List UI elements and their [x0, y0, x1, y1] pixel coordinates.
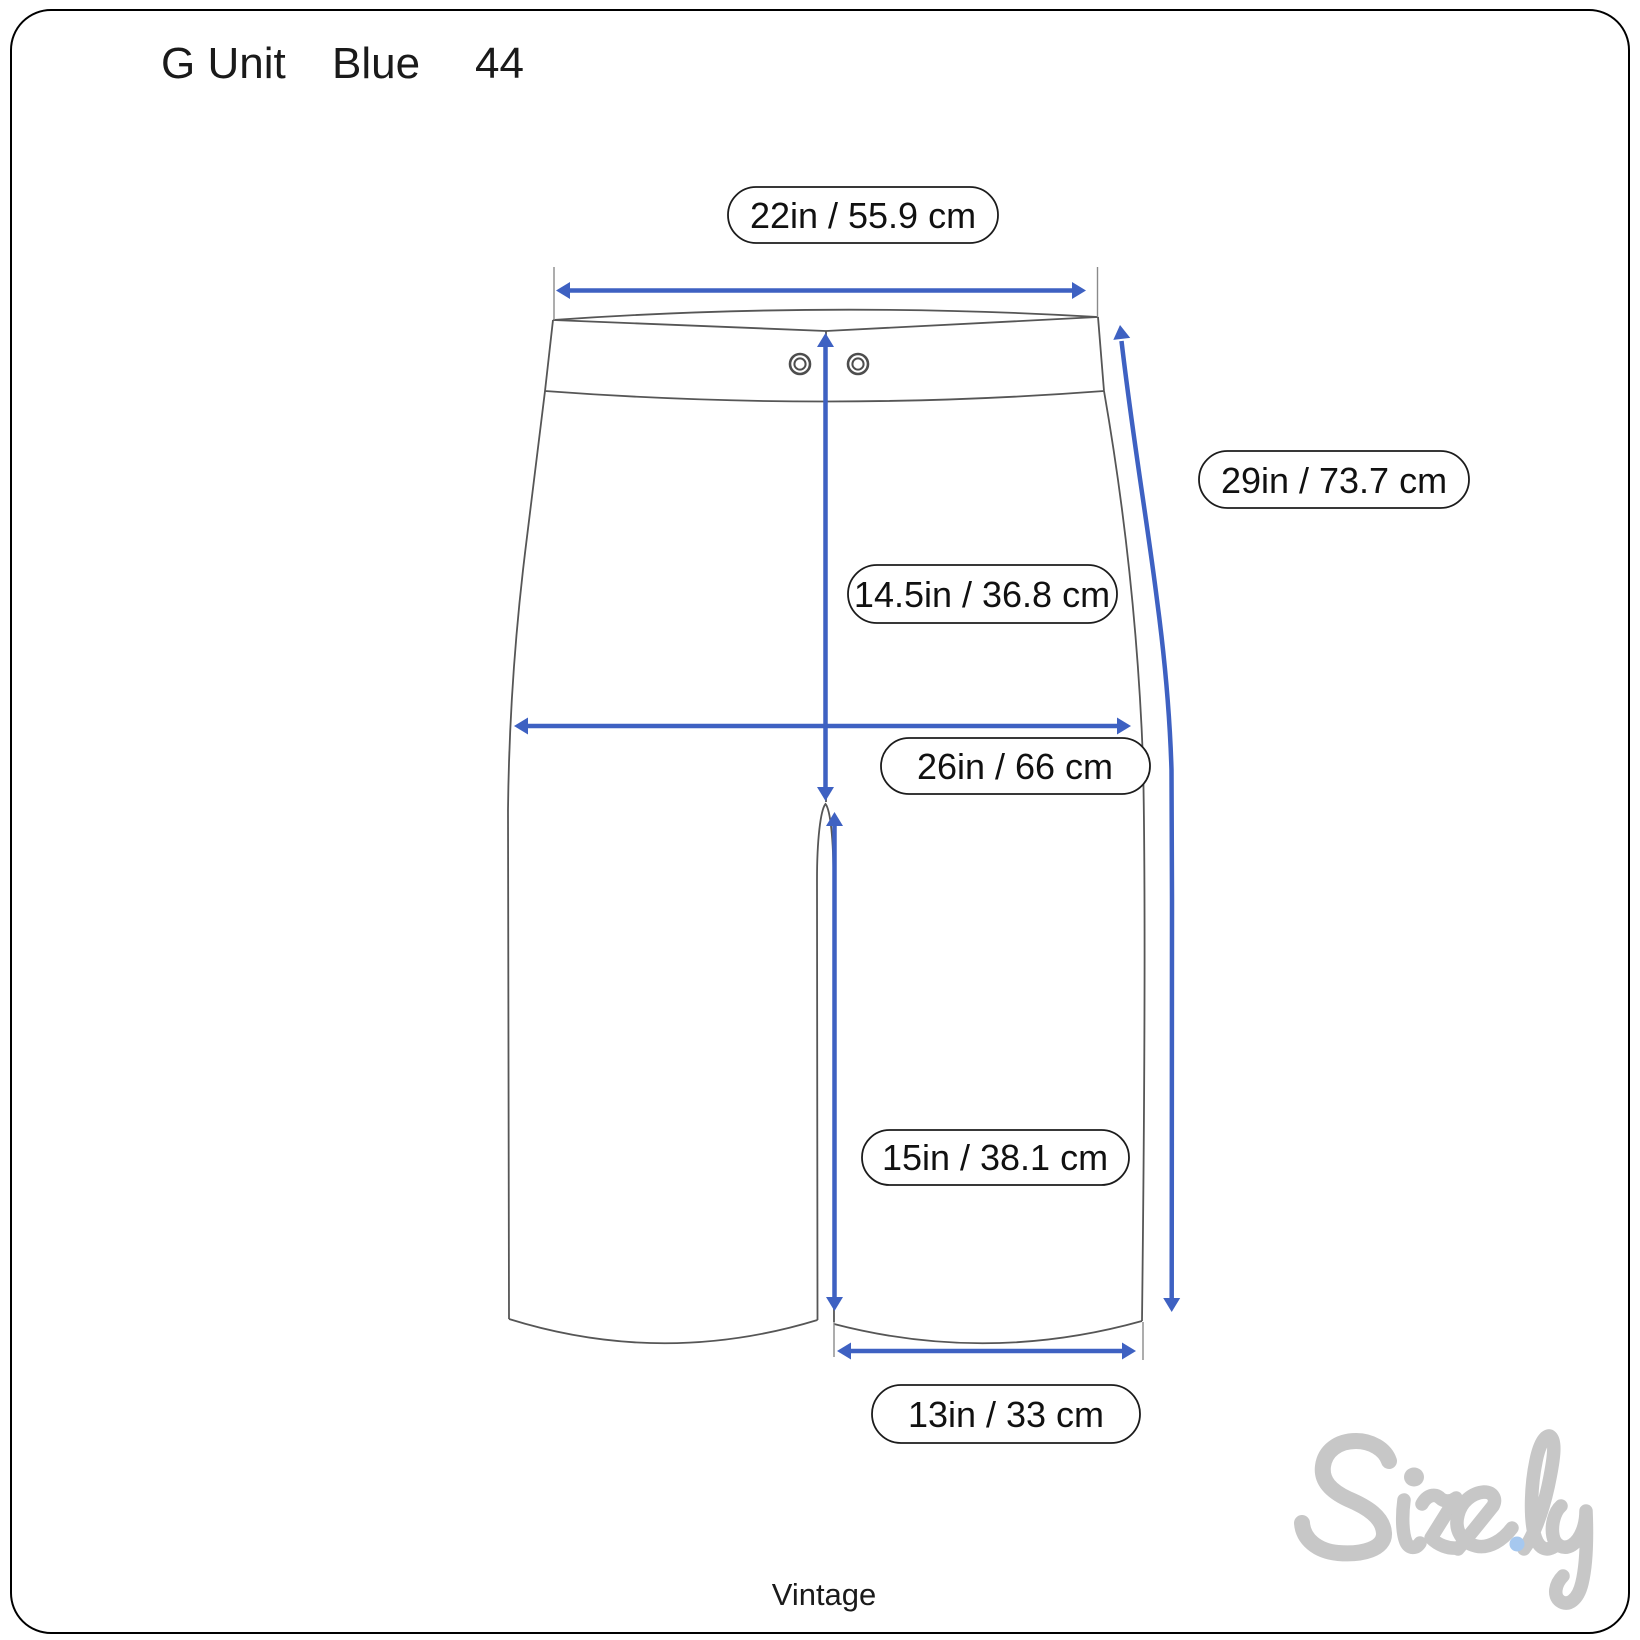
svg-text:44: 44 [475, 39, 524, 88]
svg-text:29in / 73.7 cm: 29in / 73.7 cm [1221, 460, 1447, 501]
svg-text:14.5in / 36.8 cm: 14.5in / 36.8 cm [854, 574, 1110, 615]
svg-text:G Unit: G Unit [161, 39, 286, 88]
svg-text:15in / 38.1 cm: 15in / 38.1 cm [882, 1137, 1108, 1178]
svg-text:Vintage: Vintage [772, 1577, 877, 1612]
svg-text:26in / 66 cm: 26in / 66 cm [917, 746, 1113, 787]
svg-text:22in / 55.9 cm: 22in / 55.9 cm [750, 195, 976, 236]
svg-text:Blue: Blue [332, 39, 420, 88]
svg-text:13in / 33 cm: 13in / 33 cm [908, 1394, 1104, 1435]
